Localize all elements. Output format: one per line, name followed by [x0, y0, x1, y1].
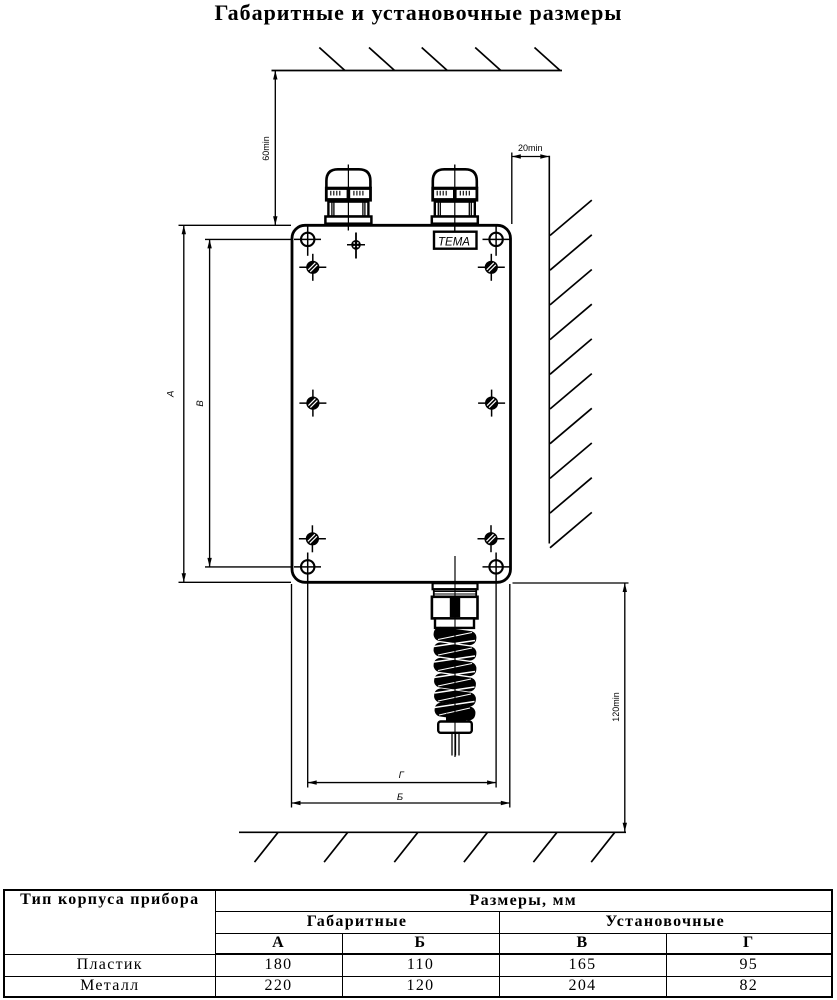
svg-text:20min: 20min: [518, 143, 543, 153]
svg-text:Б: Б: [397, 792, 403, 803]
svg-text:120min: 120min: [611, 692, 621, 722]
svg-text:Г: Г: [399, 770, 405, 781]
svg-text:TEMA: TEMA: [438, 237, 470, 249]
svg-text:60min: 60min: [261, 136, 271, 161]
svg-text:А: А: [165, 391, 176, 398]
svg-text:В: В: [195, 400, 206, 407]
